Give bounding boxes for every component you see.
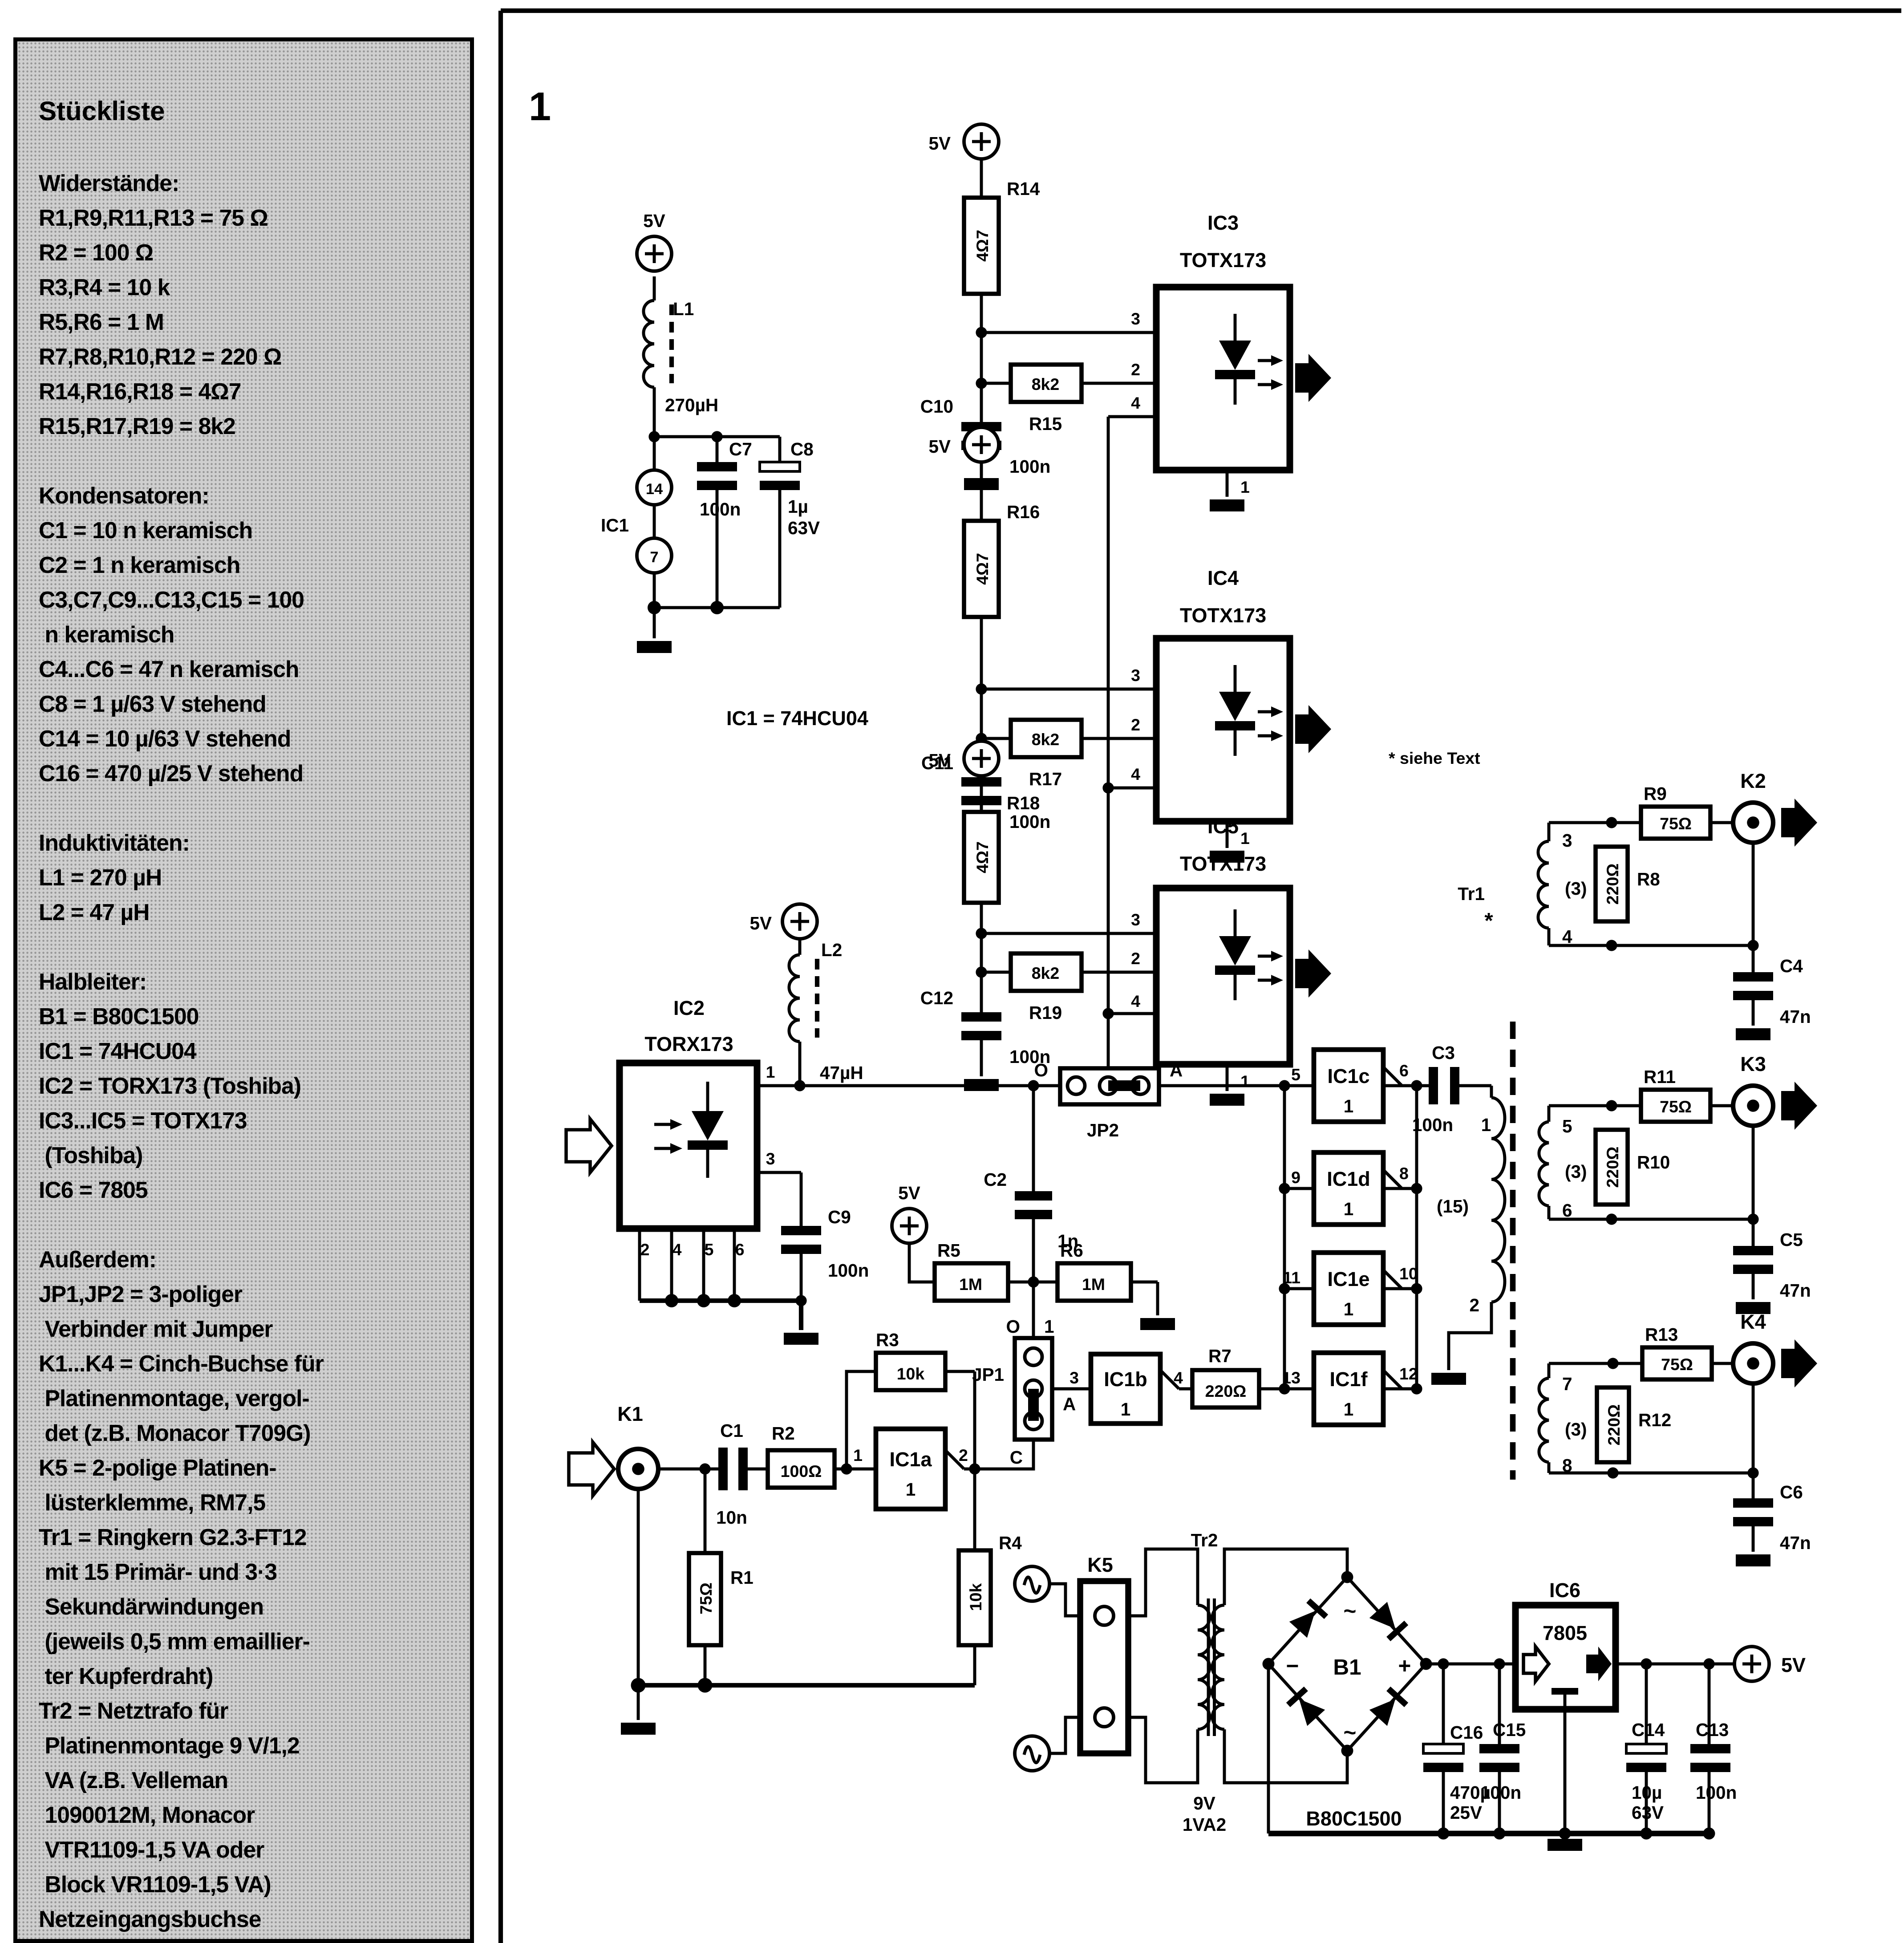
label-5v-out: 5V: [1781, 1654, 1806, 1676]
label-jp1: JP1: [972, 1364, 1004, 1385]
label-r12: R12: [1638, 1410, 1671, 1430]
label-c16: C16: [1450, 1722, 1483, 1743]
label-plus: +: [1398, 1654, 1411, 1678]
tr1-secondary1-winding: [1538, 841, 1549, 928]
label-ic1f: IC1f: [1329, 1368, 1368, 1391]
output-k3-section: 5 (3) 6 R10 220Ω R11 75Ω K3 C5 47n: [1539, 1053, 1817, 1314]
supply-5v-icon: [892, 1209, 927, 1243]
capacitor-c13: [1690, 1744, 1730, 1753]
label-r10: R10: [1637, 1152, 1670, 1172]
label-r1: R1: [730, 1567, 753, 1588]
page: Stückliste Widerstände:R1,R9,R11,R13 = 7…: [0, 0, 1904, 1943]
label-c3: C3: [1432, 1042, 1455, 1063]
supply-5v-icon: [637, 236, 672, 271]
optical-out-arrow-icon: [1295, 354, 1331, 402]
label-c4: C4: [1780, 956, 1803, 976]
ac-source-icon: [1015, 1736, 1049, 1771]
value-r7: 220Ω: [1205, 1382, 1247, 1400]
label-c14: C14: [1632, 1720, 1665, 1740]
capacitor-c9: [781, 1226, 821, 1235]
label-r4: R4: [999, 1533, 1022, 1553]
pin-10: 10: [1399, 1264, 1418, 1283]
ground-icon: [1210, 499, 1244, 511]
inductor-l1: [644, 300, 654, 387]
optical-in-arrow-icon: [566, 1119, 612, 1172]
label-5v: 5V: [928, 750, 951, 771]
label-r3: R3: [876, 1330, 899, 1350]
label-r8: R8: [1637, 869, 1660, 889]
ic1-supply-section: 5V L1 270µH 14 IC1 7 C7 100n C8 1µ 63V I…: [601, 211, 868, 730]
value-r16: 4Ω7: [973, 553, 992, 585]
pin-3: 3: [1131, 309, 1140, 328]
transformer-tr1: Tr1 * (15) 2: [1431, 884, 1513, 1480]
pin-9: 9: [1291, 1168, 1300, 1187]
label-tr2-voltage: 9V: [1193, 1793, 1215, 1813]
pin-4: 4: [1131, 765, 1140, 783]
label-o: O: [1034, 1060, 1048, 1080]
capacitor-c3: [1429, 1067, 1438, 1104]
pin-2: 2: [959, 1446, 968, 1464]
value-r18: 4Ω7: [973, 841, 992, 873]
label-c: C: [1010, 1447, 1023, 1468]
tr1-secondary3-winding: [1539, 1378, 1549, 1462]
label-5v: 5V: [643, 211, 665, 231]
sec1-pin-4: 4: [1562, 926, 1572, 947]
label-5v: 5V: [898, 1183, 920, 1203]
sec1-pin-3: 3: [1562, 830, 1572, 851]
value-c3: 100n: [1412, 1115, 1453, 1135]
pin-8: 8: [1399, 1164, 1409, 1183]
pin-14: 14: [646, 481, 663, 498]
pin-2: 2: [1131, 715, 1140, 734]
label-l2: L2: [821, 940, 842, 960]
pin-6: 6: [735, 1240, 745, 1259]
label-ic2-type: TORX173: [644, 1033, 733, 1055]
label-a: A: [1063, 1394, 1076, 1414]
label-tr1: Tr1: [1458, 884, 1485, 904]
ground-icon: [784, 1333, 818, 1345]
connector-k4: [1733, 1343, 1773, 1383]
gate-ic1b: 3 IC1b 1 4 R7 220Ω: [1069, 1346, 1284, 1424]
label-l1-value: 270µH: [665, 395, 718, 415]
value-r14: 4Ω7: [973, 230, 992, 262]
label-ic4-type: TOTX173: [1180, 604, 1266, 627]
label-r19: R19: [1029, 1002, 1062, 1023]
label-ac-bottom: ~: [1344, 1720, 1357, 1745]
value-r8: 220Ω: [1603, 864, 1622, 905]
value-r4: 10k: [966, 1583, 985, 1611]
ground-icon: [1140, 1318, 1175, 1330]
value-c10: 100n: [1009, 456, 1050, 477]
pin-6: 6: [1399, 1061, 1409, 1080]
value-c1: 10n: [716, 1507, 747, 1528]
label-ic1b-1: 1: [1121, 1399, 1131, 1420]
label-ac-top: ~: [1344, 1599, 1357, 1623]
pin-4: 4: [1131, 992, 1140, 1010]
capacitor-c1: [718, 1448, 728, 1490]
value-c5: 47n: [1780, 1280, 1811, 1301]
label-ic1d: IC1d: [1327, 1168, 1370, 1190]
output-arrow-icon: [1781, 1339, 1817, 1387]
pin-1: 1: [853, 1446, 863, 1464]
label-c9: C9: [828, 1207, 851, 1227]
connector-k3: [1733, 1086, 1773, 1126]
label-tr1-asterisk: *: [1484, 909, 1493, 933]
value-r11: 75Ω: [1660, 1097, 1692, 1116]
value-c14: 10µ: [1632, 1782, 1662, 1803]
pin-3: 3: [1131, 910, 1140, 929]
label-ic1d-1: 1: [1344, 1199, 1354, 1219]
capacitor-c5: [1733, 1246, 1773, 1255]
capacitor-c8: [760, 462, 800, 471]
label-c8-value: 1µ: [788, 496, 808, 517]
label-c12: C12: [920, 988, 953, 1008]
label-ic3-type: TOTX173: [1180, 249, 1266, 272]
label-jp2: JP2: [1087, 1120, 1119, 1140]
capacitor-c6: [1733, 1498, 1773, 1508]
output-arrow-icon: [1781, 1082, 1817, 1130]
value-r13: 75Ω: [1661, 1355, 1693, 1374]
label-l1: L1: [673, 299, 694, 319]
capacitor-c15: [1479, 1744, 1519, 1753]
pin-13: 13: [1282, 1368, 1300, 1387]
supply-5v-out-icon: [1734, 1647, 1769, 1681]
supply-5v-icon: [964, 124, 999, 159]
label-ic1c-1: 1: [1344, 1096, 1354, 1116]
label-ic1f-1: 1: [1344, 1399, 1354, 1420]
label-o: O: [1006, 1316, 1020, 1337]
pin-12: 12: [1399, 1364, 1418, 1383]
ground-icon: [637, 641, 672, 653]
label-tr2-power: 1VA2: [1183, 1814, 1226, 1835]
output-arrow-icon: [1781, 799, 1817, 847]
label-c13: C13: [1696, 1720, 1729, 1740]
label-minus: −: [1286, 1654, 1299, 1678]
value-r3: 10k: [897, 1364, 925, 1383]
value-c15: 100n: [1480, 1782, 1521, 1803]
value-c6: 47n: [1780, 1533, 1811, 1553]
label-ic4: IC4: [1207, 567, 1239, 589]
power-supply-section: K5 Tr2 9V 1VA2 − B1 + ~ ~ B80C1500: [1015, 1530, 1806, 1851]
label-b1: B1: [1333, 1655, 1361, 1679]
pin-2: 2: [640, 1240, 650, 1259]
pin-4: 4: [1174, 1368, 1183, 1387]
voltage-c16: 25V: [1450, 1802, 1482, 1823]
label-5v: 5V: [749, 913, 772, 933]
voltage-c14: 63V: [1632, 1802, 1664, 1823]
pin-1: 1: [1240, 1072, 1250, 1091]
label-r9: R9: [1644, 783, 1667, 804]
tr1-pin-1: 1: [1481, 1115, 1491, 1135]
sec2-turns: (3): [1565, 1161, 1587, 1182]
label-c10: C10: [920, 396, 953, 417]
label-ic6-type: 7805: [1543, 1622, 1587, 1644]
label-r6: R6: [1060, 1240, 1083, 1261]
parallel-gates-section: 5 IC1c 1 6 9 IC1d 1 8 11 IC1e 1 10 13 IC…: [1282, 1042, 1491, 1425]
label-c8: C8: [790, 439, 814, 459]
input-k1-section: K1 C1 10n R2 100Ω 1 IC1a 1 2 R3 10k R1 7…: [569, 1330, 1033, 1735]
figure-number: 1: [529, 85, 551, 129]
label-c7-value: 100n: [700, 499, 741, 519]
sec2-pin-5: 5: [1562, 1116, 1572, 1136]
value-r6: 1M: [1082, 1275, 1105, 1294]
input-arrow-icon: [569, 1442, 614, 1496]
value-r5: 1M: [959, 1275, 982, 1294]
label-c5: C5: [1780, 1229, 1803, 1250]
pin-3: 3: [1069, 1368, 1079, 1387]
output-k4-section: 7 (3) 8 R12 220Ω R13 75Ω K4 C6 47n: [1539, 1310, 1817, 1566]
label-k2: K2: [1740, 770, 1766, 792]
value-c11: 100n: [1009, 811, 1050, 832]
label-ic1: IC1: [601, 515, 629, 535]
pin-3: 3: [1131, 666, 1140, 685]
pin-1: 1: [1240, 829, 1250, 848]
pin-2: 2: [1131, 360, 1140, 379]
capacitor-c14: [1626, 1744, 1666, 1753]
label-a: A: [1170, 1060, 1183, 1080]
schematic: 1: [0, 0, 1904, 1943]
label-5v: 5V: [928, 436, 951, 457]
capacitor-c2: [1015, 1191, 1052, 1201]
value-c9: 100n: [828, 1260, 869, 1281]
label-k4: K4: [1740, 1310, 1766, 1333]
label-k5: K5: [1087, 1554, 1113, 1576]
ic5-body: [1156, 888, 1290, 1064]
ground-icon: [1548, 1839, 1582, 1851]
pin-4: 4: [1131, 393, 1140, 412]
pin-3: 3: [766, 1149, 775, 1168]
label-r7: R7: [1208, 1346, 1232, 1366]
capacitor-c7: [697, 462, 737, 471]
sec3-pin-8: 8: [1562, 1455, 1572, 1476]
value-c13: 100n: [1696, 1782, 1737, 1803]
label-1: 1: [1044, 1316, 1054, 1337]
value-r19: 8k2: [1032, 964, 1060, 982]
note-ic1: IC1 = 74HCU04: [726, 707, 868, 730]
value-r1: 75Ω: [697, 1582, 715, 1614]
label-ic5: IC5: [1207, 815, 1239, 838]
supply-5v-icon: [964, 741, 999, 776]
tr1-pin-2: 2: [1469, 1295, 1479, 1315]
connector-k1: [618, 1449, 658, 1489]
ground-icon: [1736, 1028, 1770, 1040]
optical-out-arrow-icon: [1295, 949, 1331, 998]
value-r10: 220Ω: [1603, 1147, 1622, 1188]
value-r2: 100Ω: [781, 1462, 822, 1481]
tr1-primary-winding: [1491, 1098, 1505, 1302]
capacitor-c4: [1733, 972, 1773, 982]
sec1-turns: (3): [1565, 878, 1587, 899]
capacitor-c16: [1423, 1744, 1463, 1753]
label-c6: C6: [1780, 1482, 1803, 1502]
pin-1: 1: [1240, 478, 1250, 496]
pin-1: 1: [766, 1063, 775, 1081]
pin-5: 5: [705, 1240, 714, 1259]
value-r17: 8k2: [1032, 730, 1060, 749]
label-ic5-type: TOTX173: [1180, 852, 1266, 875]
label-5v: 5V: [928, 133, 951, 154]
pin-7: 7: [650, 549, 658, 566]
value-r12: 220Ω: [1604, 1404, 1623, 1446]
label-r13: R13: [1645, 1324, 1678, 1345]
ground-icon: [1210, 1094, 1244, 1106]
capacitor-c12: [961, 1012, 1001, 1022]
ground-icon: [621, 1723, 656, 1735]
tr1-primary-turns: (15): [1437, 1196, 1469, 1217]
pin-2: 2: [1131, 949, 1140, 968]
label-r16: R16: [1007, 502, 1040, 522]
output-k2-section: 3 (3) 4 R8 220Ω R9 75Ω K2 C4 47n: [1538, 770, 1817, 1040]
label-c1: C1: [720, 1420, 743, 1441]
connector-k2: [1733, 803, 1773, 843]
label-c8-voltage: 63V: [788, 518, 820, 538]
inductor-l2: [789, 955, 800, 1042]
supply-5v-icon: [782, 904, 817, 939]
pin-4: 4: [672, 1240, 682, 1259]
label-ic6: IC6: [1549, 1579, 1580, 1602]
label-r17: R17: [1029, 769, 1062, 789]
label-ic1e: IC1e: [1327, 1268, 1369, 1290]
label-k3: K3: [1740, 1053, 1766, 1075]
label-r18: R18: [1007, 793, 1040, 813]
label-ic2: IC2: [673, 997, 705, 1019]
optical-out-arrow-icon: [1295, 705, 1331, 753]
tr1-secondary2-winding: [1539, 1122, 1549, 1206]
label-r14: R14: [1007, 178, 1040, 199]
label-l2-value: 47µH: [820, 1063, 863, 1083]
value-r15: 8k2: [1032, 375, 1060, 393]
supply-5v-icon: [964, 427, 999, 462]
label-ic1b: IC1b: [1104, 1368, 1147, 1391]
label-k1: K1: [617, 1403, 643, 1425]
label-ic1c: IC1c: [1327, 1065, 1369, 1087]
label-c15: C15: [1493, 1720, 1526, 1740]
ac-source-icon: [1015, 1566, 1049, 1601]
pin-11: 11: [1283, 1268, 1300, 1287]
sec2-pin-6: 6: [1562, 1200, 1572, 1221]
label-b1-type: B80C1500: [1306, 1807, 1402, 1830]
label-tr2: Tr2: [1191, 1530, 1218, 1550]
ground-icon: [1736, 1554, 1770, 1566]
label-r5: R5: [937, 1240, 960, 1261]
label-c2: C2: [984, 1169, 1007, 1190]
ground-icon: [1431, 1373, 1466, 1385]
pin-5: 5: [1291, 1065, 1300, 1084]
value-c4: 47n: [1780, 1006, 1811, 1027]
label-r11: R11: [1644, 1067, 1676, 1087]
label-r15: R15: [1029, 414, 1062, 434]
label-r2: R2: [772, 1423, 795, 1444]
label-ic1e-1: 1: [1344, 1299, 1354, 1319]
label-c7: C7: [729, 439, 752, 459]
label-ic1a: IC1a: [889, 1448, 932, 1471]
sec3-turns: (3): [1565, 1419, 1587, 1440]
note-asterisk: * siehe Text: [1389, 749, 1480, 767]
value-r9: 75Ω: [1660, 814, 1692, 833]
label-ic1a-1: 1: [906, 1479, 916, 1500]
sec3-pin-7: 7: [1562, 1374, 1572, 1394]
label-ic3: IC3: [1207, 211, 1239, 234]
